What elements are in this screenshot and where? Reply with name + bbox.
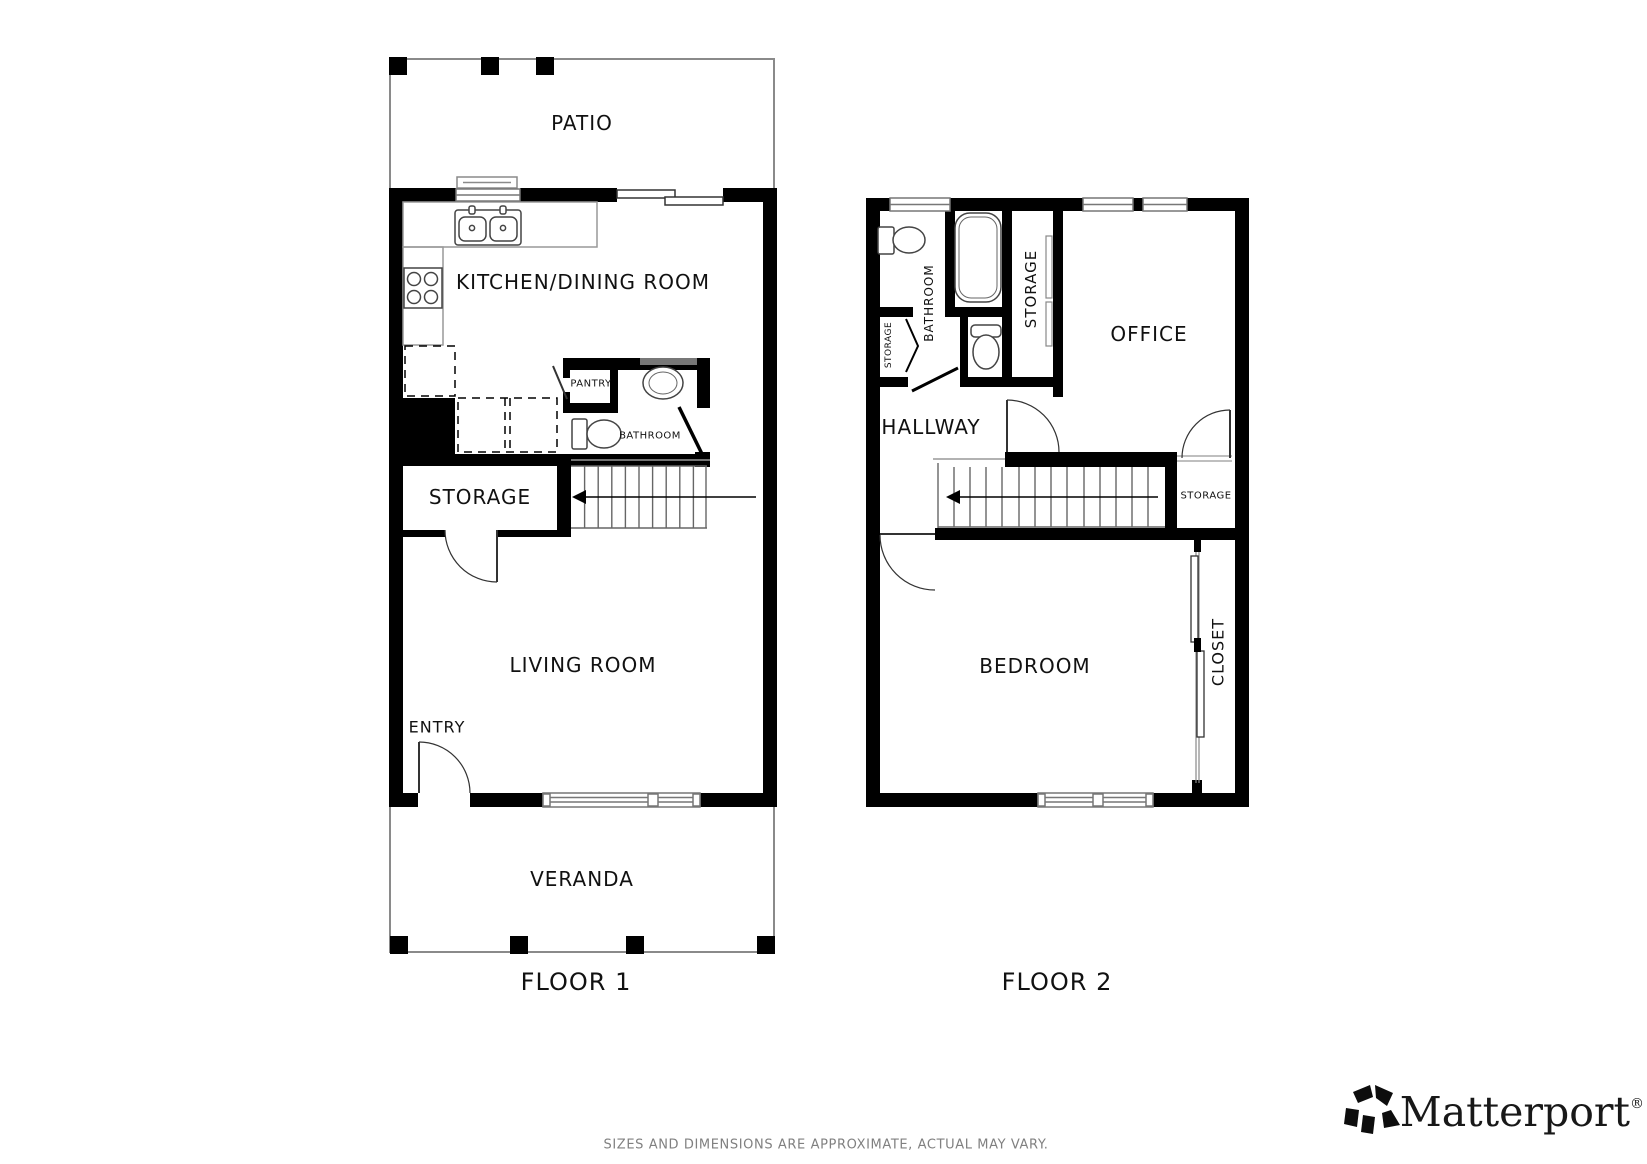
matterport-logo: Matterport®	[1344, 1076, 1644, 1146]
bathroom1-toilet	[572, 419, 621, 449]
storage-door	[445, 530, 497, 582]
office-door	[1007, 400, 1059, 452]
matterport-wordmark: Matterport®	[1400, 1076, 1644, 1140]
room-label-hallway: HALLWAY	[881, 415, 980, 439]
stove	[404, 268, 442, 308]
registered-trademark-symbol: ®	[1630, 1096, 1644, 1112]
bathroom1-vanity	[640, 358, 697, 399]
room-label-pantry: PANTRY	[570, 379, 611, 390]
room-label-storage-upper: STORAGE	[1022, 250, 1040, 328]
bathroom2-door	[912, 368, 958, 391]
room-label-living-room: LIVING ROOM	[509, 653, 656, 677]
floor2-title: FLOOR 2	[1002, 968, 1113, 996]
closet-sliding-doors	[1191, 540, 1204, 783]
floorplan-drawing	[0, 0, 1647, 1164]
stairs-floor1	[571, 460, 756, 528]
stairs2-direction-arrow	[946, 490, 1158, 504]
disclaimer-text: SIZES AND DIMENSIONS ARE APPROXIMATE, AC…	[604, 1138, 1049, 1153]
floor1-title: FLOOR 1	[521, 968, 632, 996]
room-label-bathroom-floor2: BATHROOM	[922, 264, 936, 341]
room-label-bedroom: BEDROOM	[979, 654, 1090, 678]
kitchen-sink	[455, 206, 521, 245]
entry-door	[419, 742, 470, 793]
stairs-direction-arrow	[572, 490, 756, 504]
storage-bifold-door	[906, 319, 918, 372]
room-label-storage-stairs: STORAGE	[1180, 491, 1231, 502]
bathroom2-toilet	[878, 227, 925, 254]
room-label-closet: CLOSET	[1209, 618, 1228, 686]
storage-shelf-rod	[1046, 236, 1052, 346]
room-label-patio: PATIO	[551, 111, 613, 135]
matterport-logo-icon-space	[1344, 1076, 1392, 1134]
bathroom2-toilet2	[971, 325, 1001, 369]
kitchen-window	[456, 189, 520, 201]
floorplan-page: PATIO KITCHEN/DINING ROOM PANTRY BATHROO…	[0, 0, 1647, 1164]
bathtub	[955, 213, 1001, 302]
room-label-office: OFFICE	[1110, 322, 1187, 346]
bedroom-door	[880, 534, 935, 590]
room-label-storage-floor1: STORAGE	[429, 485, 531, 509]
sliding-door	[617, 190, 723, 205]
window-above-sink	[457, 177, 517, 188]
room-label-veranda: VERANDA	[530, 867, 634, 891]
bathroom1-door	[679, 407, 703, 456]
living-room-window	[543, 793, 700, 807]
room-label-storage-bath: STORAGE	[884, 322, 894, 368]
room-label-entry: ENTRY	[409, 718, 466, 737]
office-storage-door	[1182, 410, 1230, 458]
room-label-bathroom-floor1: BATHROOM	[619, 431, 681, 442]
room-label-kitchen-dining: KITCHEN/DINING ROOM	[456, 270, 710, 294]
